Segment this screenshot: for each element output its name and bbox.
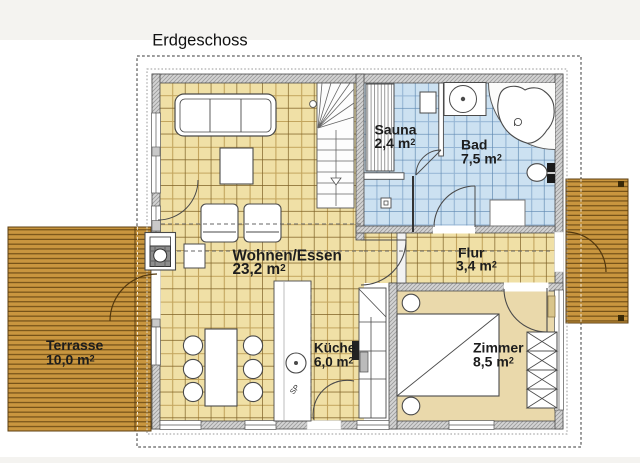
- svg-text:Erdgeschoss: Erdgeschoss: [152, 32, 247, 50]
- svg-text:7,5 m2: 7,5 m2: [461, 150, 502, 166]
- svg-text:3,4 m2: 3,4 m2: [456, 258, 497, 274]
- svg-text:8,5 m2: 8,5 m2: [473, 354, 514, 370]
- svg-text:2,4 m2: 2,4 m2: [375, 135, 416, 151]
- svg-text:6,0 m2: 6,0 m2: [314, 355, 354, 370]
- svg-text:10,0 m2: 10,0 m2: [46, 351, 95, 367]
- svg-text:Küche: Küche: [314, 340, 356, 355]
- svg-text:23,2 m2: 23,2 m2: [233, 261, 287, 278]
